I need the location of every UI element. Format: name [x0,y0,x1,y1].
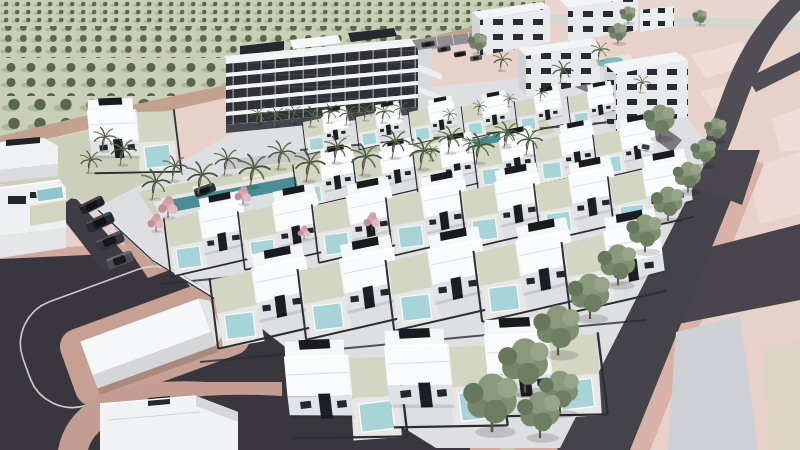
render-stage [0,0,800,450]
aerial-development-render [0,0,800,450]
west-building [0,137,66,258]
